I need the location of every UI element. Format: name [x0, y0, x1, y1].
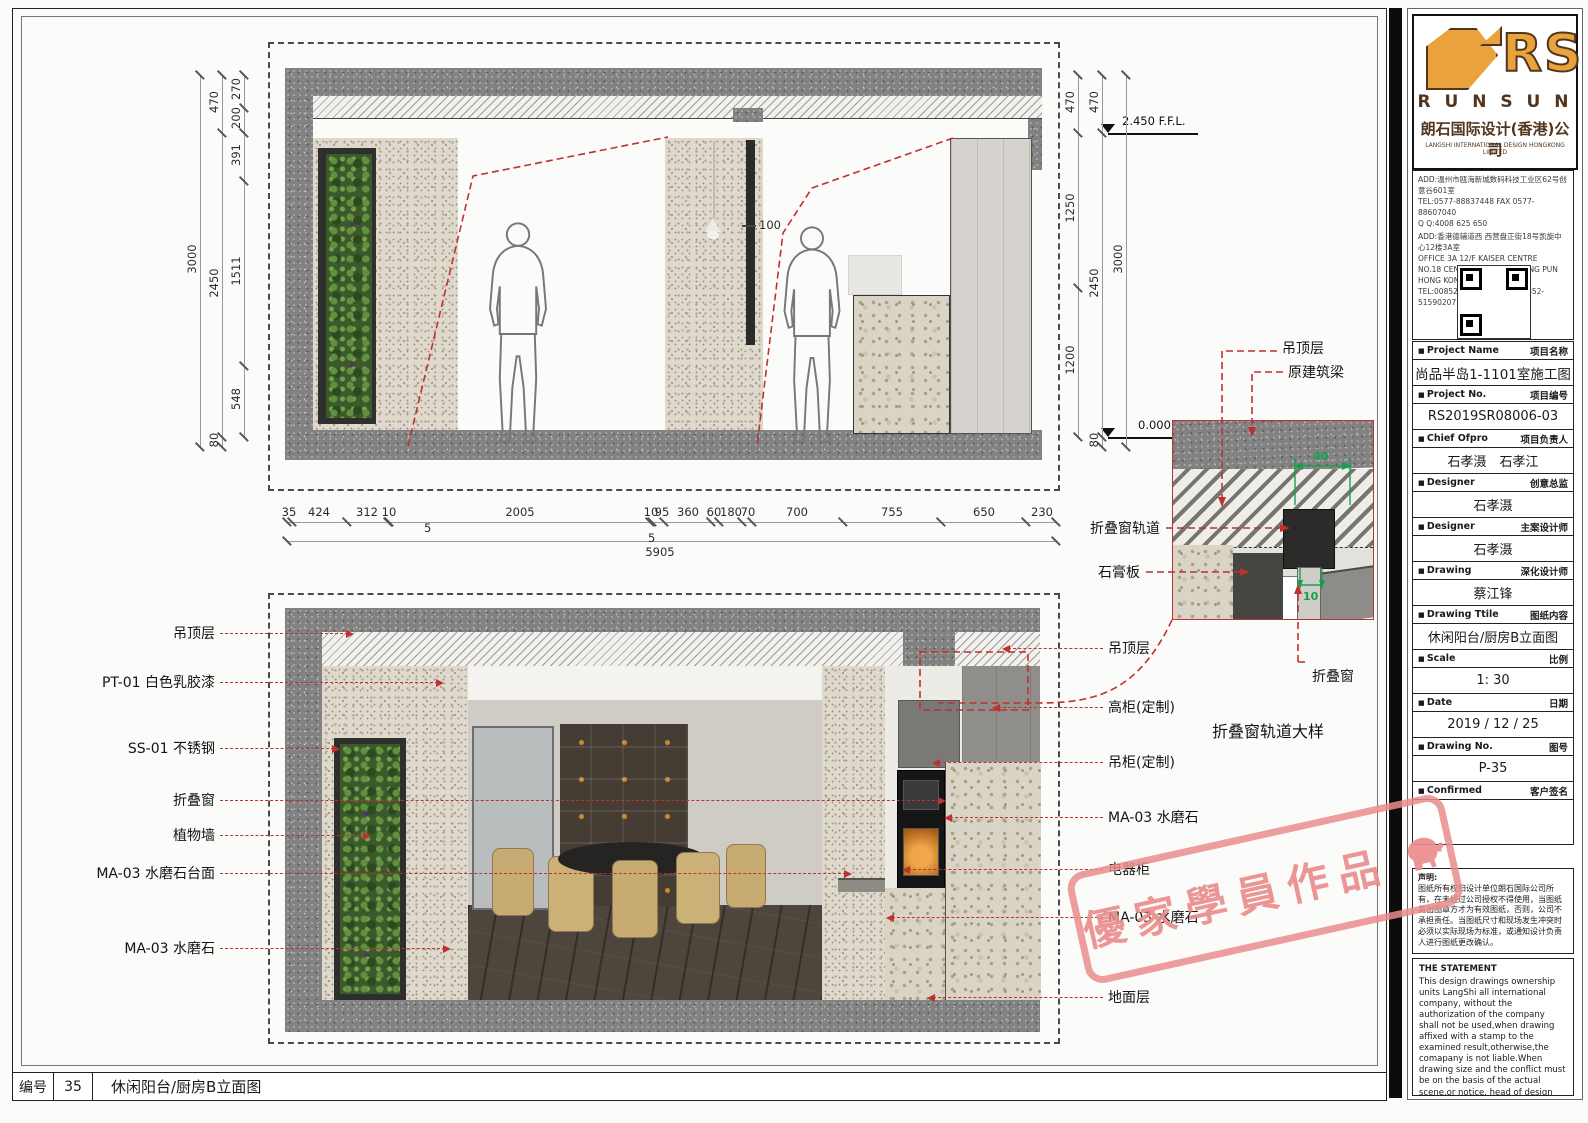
dim-label: 1511: [229, 221, 243, 321]
titleblock-row-header: ■ Drawing深化设计师: [1412, 561, 1574, 580]
bullet-icon: ■: [1418, 435, 1427, 443]
sheet-number-cell: 35: [54, 1073, 93, 1100]
titleblock-row-label-en: Project Name: [1427, 345, 1499, 356]
titleblock-row-label-en: Designer: [1427, 521, 1475, 532]
detail-label-gypsum: 石膏板: [1098, 562, 1140, 582]
render-interior-ceiling: [468, 666, 822, 701]
sheet-title-strip: 编号 35 休闲阳台/厨房B立面图: [12, 1072, 1387, 1101]
detail-caption: 折叠窗轨道大样: [1212, 718, 1324, 742]
titleblock-row-header: ■ Chief Ofpro项目负责人: [1412, 429, 1574, 448]
level-triangle-bottom: [1101, 428, 1115, 437]
kitchen-wall-cabinet: [898, 700, 960, 768]
callout-leader: [220, 800, 940, 801]
level-line-top: [1108, 133, 1198, 135]
dim-label: 1200: [1063, 310, 1077, 410]
drawing-sheet: 100 2.450 F.F.L. 0.000 F.F.L.: [0, 0, 1588, 1123]
dim-label: 700: [767, 505, 827, 519]
detail-inset: [1172, 420, 1374, 620]
elevation-beam-stub: [733, 108, 763, 122]
callout-leader: [1008, 648, 1103, 649]
callout-leader: [938, 762, 1103, 763]
detail-label-ceiling: 吊顶层: [1282, 338, 1324, 358]
callout-label-right: 地面层: [1108, 987, 1308, 1007]
pendant-bulb: [707, 231, 719, 239]
statement-en-box: THE STATEMENT This design drawings owner…: [1412, 958, 1574, 1096]
detail-beam: [1172, 420, 1374, 475]
bullet-icon: ■: [1418, 611, 1427, 619]
human-figure-1: [475, 222, 561, 446]
dim-label: 1250: [1063, 158, 1077, 258]
dim-label: 650: [954, 505, 1014, 519]
titleblock-row-header: ■ Designer创意总监: [1412, 473, 1574, 492]
company-name-en: LANGSHI INTERNATIONAL DESIGN HONGKONG LI…: [1414, 142, 1576, 156]
runsun-logo-notch: [1480, 26, 1502, 46]
callout-arrow: [902, 866, 910, 874]
dim-label: 80: [1087, 390, 1101, 490]
titleblock-row-value: RS2019SR08006-03: [1412, 403, 1574, 430]
render-floor-slab: [285, 1000, 1040, 1032]
dim-total-label: 5905: [630, 545, 690, 559]
dim-chain-line: [244, 75, 245, 437]
detail-dim-top: 40: [1313, 450, 1328, 463]
elevation-ceiling-hatch: [313, 96, 1042, 118]
statement-en-title: THE STATEMENT: [1419, 964, 1567, 975]
dining-chair: [492, 848, 534, 916]
titleblock-row-label-en: Chief Ofpro: [1427, 433, 1488, 444]
dining-chair: [726, 844, 766, 908]
bullet-icon: ■: [1418, 567, 1427, 575]
titleblock-row-value: P-35: [1412, 755, 1574, 782]
dining-chair: [676, 852, 720, 924]
titleblock-row-label-en: Drawing Ttile: [1427, 609, 1499, 620]
detail-hatch-layer: [1173, 469, 1373, 547]
titleblock-row-header: ■ Scale比例: [1412, 649, 1574, 668]
dim-label: 391: [229, 105, 243, 205]
bullet-icon: ■: [1418, 743, 1427, 751]
callout-arrow: [927, 994, 935, 1002]
contact-box: ADD:温州市瓯海新城数码科技工业区62号创意谷601室 TEL:0577-88…: [1412, 170, 1574, 340]
kitchen-terrazzo-mass: [945, 762, 1041, 1000]
callout-arrow: [363, 832, 371, 840]
elevation-left-slab: [285, 68, 313, 460]
level-label-top: 2.450 F.F.L.: [1122, 114, 1186, 128]
titleblock-row-header: ■ Project Name项目名称: [1412, 341, 1574, 360]
bullet-icon: ■: [1418, 787, 1427, 795]
titleblock-row-value: 蔡江锋: [1412, 579, 1574, 606]
titleblock-row-label-cn: 比例: [1549, 652, 1568, 666]
titleblock-row-value: 休闲阳台/厨房B立面图: [1412, 623, 1574, 650]
callout-label-left: 植物墙: [60, 825, 215, 845]
detail-terrazzo-patch: [1173, 545, 1233, 619]
titleblock-row-value: 2019 / 12 / 25: [1412, 711, 1574, 738]
callout-label-left: MA-03 水磨石台面: [60, 863, 215, 883]
dim-label: 80: [207, 390, 221, 490]
titleblock-row-label-en: Designer: [1427, 477, 1475, 488]
titleblock-row-header: ■ Project No.项目编号: [1412, 385, 1574, 404]
callout-arrow: [436, 679, 444, 687]
callout-label-right: 高柜(定制): [1108, 697, 1308, 717]
dim-chain-line: [1078, 75, 1079, 437]
level-triangle-top: [1101, 124, 1115, 133]
callout-arrow: [938, 797, 946, 805]
titleblock-row-label-cn: 创意总监: [1530, 476, 1568, 490]
contact-tel-1: TEL:0577-88837448 FAX 0577-88607040: [1418, 197, 1568, 219]
titleblock-rows: ■ Project Name项目名称尚品半岛1-1101室施工图■ Projec…: [1412, 342, 1574, 845]
bullet-icon: ■: [1418, 479, 1427, 487]
dim-label: 470: [207, 52, 221, 152]
titleblock-row-label-en: Drawing: [1427, 565, 1472, 576]
dim-chain-line: [222, 75, 223, 447]
callout-arrow: [443, 945, 451, 953]
titleblock-row-label-cn: 日期: [1549, 696, 1568, 710]
titleblock-row-label-cn: 主案设计师: [1520, 520, 1568, 534]
callout-arrow: [944, 814, 952, 822]
contact-address-2-en1: OFFICE 3A 12/F KAISER CENTRE: [1418, 254, 1568, 265]
elevation-top-slab: [285, 68, 1042, 96]
elevation-counter: [853, 295, 950, 434]
dim-label: 470: [1063, 52, 1077, 152]
detail-dark-strip: [1233, 553, 1283, 619]
callout-label-left: MA-03 水磨石: [60, 938, 215, 958]
titleblock-row-label-cn: 项目编号: [1530, 388, 1568, 402]
titleblock-row-header: ■ Date日期: [1412, 693, 1574, 712]
sheet-title-text: 休闲阳台/厨房B立面图: [111, 1076, 261, 1097]
logo-box: RS R U N S U N 朗石国际设计(香港)公司 LANGSHI INTE…: [1412, 14, 1578, 170]
bullet-icon: ■: [1418, 523, 1427, 531]
dim-chain-line: [1102, 75, 1103, 447]
appliance-ghost: [848, 255, 902, 295]
dining-chair: [612, 860, 658, 938]
callout-label-right: 吊柜(定制): [1108, 752, 1308, 772]
callout-label-right: MA-03 水磨石: [1108, 807, 1308, 827]
contact-address-2-cn: ADD:香港德辅道西 西营盘正街18号凯旋中心12楼3A室: [1418, 232, 1568, 254]
detail-label-track: 折叠窗轨道: [1090, 518, 1160, 538]
callout-leader: [892, 917, 1103, 918]
detail-label-window: 折叠窗: [1312, 666, 1354, 686]
callout-leader: [933, 997, 1103, 998]
render-divider-pier: [822, 666, 885, 1000]
render-beam-drop: [903, 608, 955, 668]
dim-label: 230: [1012, 505, 1072, 519]
callout-arrow: [992, 704, 1000, 712]
titleblock-row-label-cn: 项目负责人: [1520, 432, 1568, 446]
dim-label: 755: [862, 505, 922, 519]
callout-arrow: [932, 759, 940, 767]
bullet-icon: ■: [1418, 347, 1427, 355]
runsun-wordmark: R U N S U N: [1414, 92, 1576, 112]
bullet-icon: ■: [1418, 699, 1427, 707]
kitchen-terrazzo-base: [885, 888, 945, 1000]
dim-label: 2005: [490, 505, 550, 519]
titleblock-row-value: 石孝滠 石孝江: [1412, 447, 1574, 474]
render-left-slab: [285, 608, 322, 1032]
dim-label: 470: [1087, 52, 1101, 152]
titleblock-row-label-cn: 图号: [1549, 740, 1568, 754]
callout-leader: [220, 948, 445, 949]
callout-leader: [220, 748, 334, 749]
callout-label-left: 吊顶层: [60, 623, 215, 643]
render-plant-greenery: [340, 744, 400, 994]
titleblock-row-label-cn: 项目名称: [1530, 344, 1568, 358]
dim-chain-line: [200, 75, 201, 447]
titleblock-row-label-en: Confirmed: [1427, 785, 1482, 796]
callout-leader: [220, 873, 846, 874]
titleblock-row-value: 石孝滠: [1412, 535, 1574, 562]
titleblock-row-value: 尚品半岛1-1101室施工图: [1412, 359, 1574, 386]
contact-qq: Q Q:4008 625 650: [1418, 219, 1568, 230]
contact-address-1: ADD:温州市瓯海新城数码科技工业区62号创意谷601室: [1418, 175, 1568, 197]
pendant-cord: [713, 142, 715, 220]
dim-label: 5: [424, 521, 431, 535]
detail-track-block: [1283, 509, 1335, 569]
dim-label: 5: [648, 531, 655, 545]
dim-label: 2450: [1087, 233, 1101, 333]
plant-wall-greenery: [326, 154, 372, 418]
callout-leader: [908, 869, 1103, 870]
dim-label: 3000: [1111, 209, 1125, 309]
callout-label-left: 折叠窗: [60, 790, 215, 810]
callout-leader: [220, 682, 438, 683]
detail-dim-bottom: 10: [1303, 590, 1318, 603]
titleblock-row-header: ■ Drawing Ttile图纸内容: [1412, 605, 1574, 624]
detail-label-beam: 原建筑梁: [1288, 362, 1344, 382]
statement-en-body: This design drawings ownership units Lan…: [1419, 977, 1567, 1096]
runsun-logo-rs: RS: [1502, 24, 1584, 84]
callout-arrow: [1002, 645, 1010, 653]
dim-label: 548: [229, 349, 243, 449]
dim-label: 3000: [185, 209, 199, 309]
callout-leader: [220, 835, 365, 836]
elephant-icon: [1396, 824, 1452, 883]
callout-arrow: [346, 630, 354, 638]
dim-chain-line: [1126, 75, 1127, 447]
runsun-logo-mark: [1426, 28, 1498, 90]
qr-code: [1457, 265, 1531, 339]
dim-label: 2450: [207, 233, 221, 333]
callout-leader: [950, 817, 1103, 818]
elevation-floor-slab: [285, 430, 1042, 460]
dim-total-line: [287, 541, 1056, 542]
elevation-tall-cabinet: [950, 138, 1032, 434]
callout-label-right: 吊顶层: [1108, 638, 1308, 658]
titleblock-row-header: ■ Drawing No.图号: [1412, 737, 1574, 756]
titleblock-row-label-cn: 深化设计师: [1520, 564, 1568, 578]
dim-label: 10: [359, 505, 419, 519]
callout-arrow: [886, 914, 894, 922]
detail-cabinet-grey: [1321, 565, 1373, 620]
kitchen-tall-cabinet: [962, 666, 1040, 764]
callout-leader: [998, 707, 1103, 708]
titleblock-row-label-cn: 图纸内容: [1530, 608, 1568, 622]
sheet-title-cell: 休闲阳台/厨房B立面图: [93, 1073, 1386, 1100]
titleblock-row-label-cn: 客户签名: [1530, 784, 1568, 798]
track-dim-tick: [742, 225, 756, 227]
titleblock-row-value: 1: 30: [1412, 667, 1574, 694]
folding-window-track-bar: [746, 140, 755, 345]
titleblock-row-label-en: Date: [1427, 697, 1452, 708]
sheet-number-label-cell: 编号: [13, 1073, 54, 1100]
titleblock-row-header: ■ Designer主案设计师: [1412, 517, 1574, 536]
bullet-icon: ■: [1418, 655, 1427, 663]
titleblock-row-label-en: Project No.: [1427, 389, 1486, 400]
bullet-icon: ■: [1418, 391, 1427, 399]
callout-arrow: [844, 870, 852, 878]
elevation-ceiling-line: [313, 118, 1042, 119]
human-figure-2: [770, 226, 854, 446]
oven-window-upper: [903, 780, 939, 810]
titleblock-row-value: 石孝滠: [1412, 491, 1574, 518]
callout-label-left: PT-01 白色乳胶漆: [60, 672, 215, 692]
callout-label-left: SS-01 不锈钢: [60, 738, 215, 758]
titleblock-row-label-en: Scale: [1427, 653, 1456, 664]
titleblock-divider-bar: [1389, 8, 1402, 1098]
callout-arrow: [332, 745, 340, 753]
callout-leader: [220, 633, 348, 634]
titleblock-row-label-en: Drawing No.: [1427, 741, 1493, 752]
